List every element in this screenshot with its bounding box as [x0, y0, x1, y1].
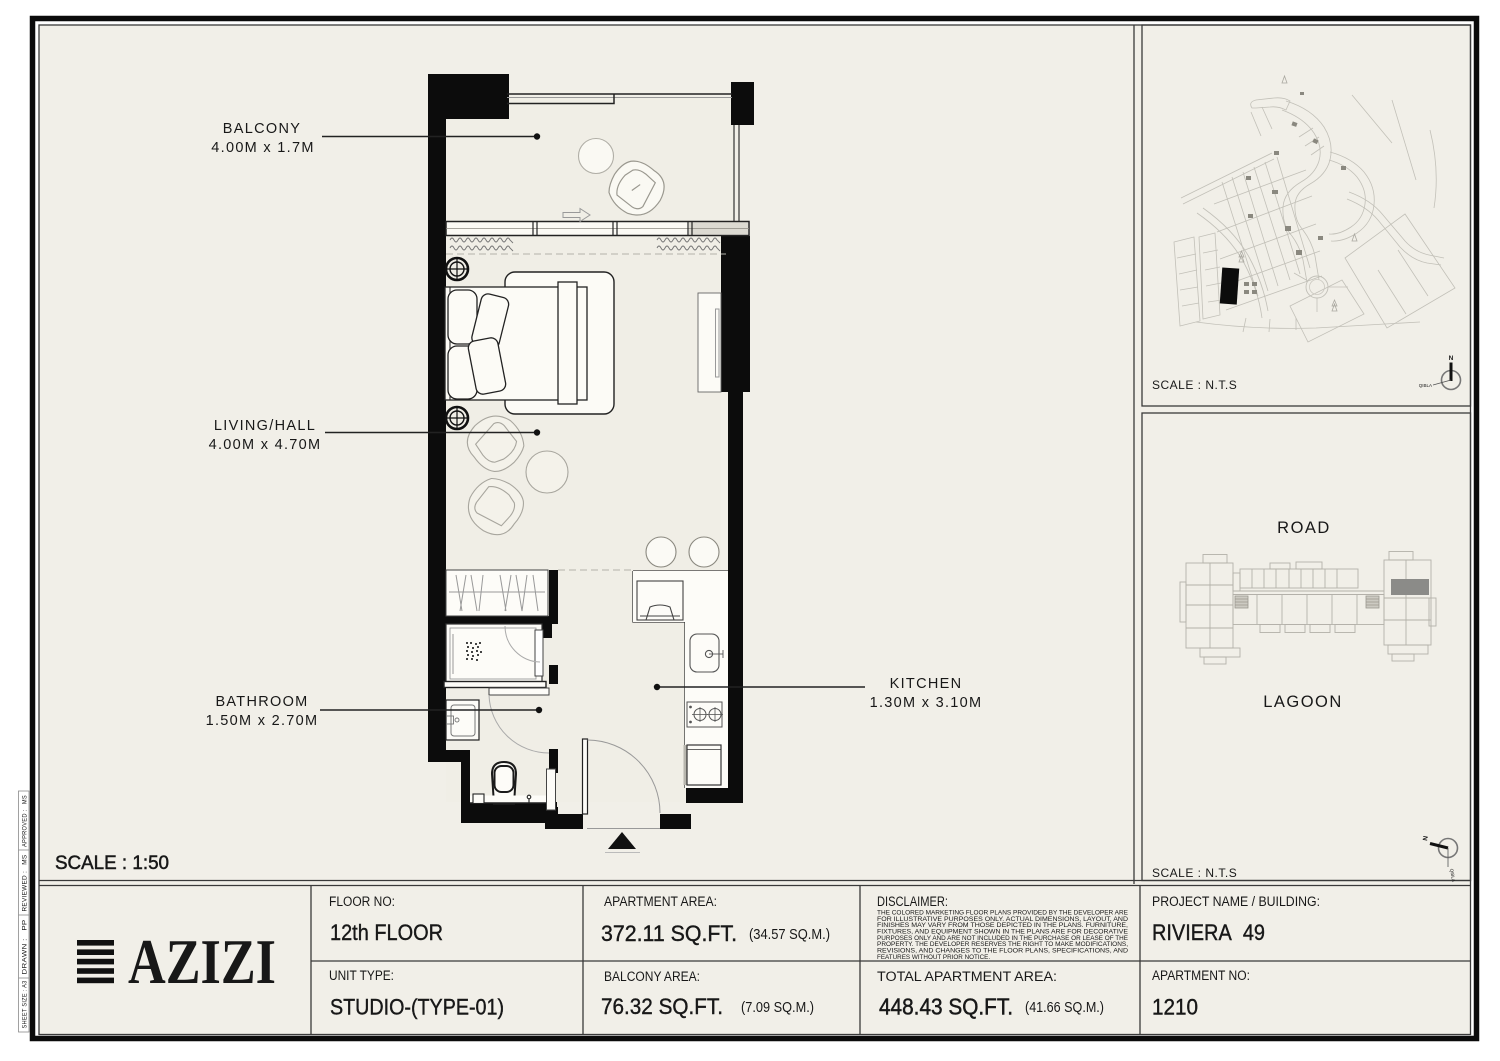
svg-text:BATHROOM: BATHROOM [215, 694, 308, 710]
svg-text:1.50M x 2.70M: 1.50M x 2.70M [206, 713, 319, 729]
svg-text:DRAWN : PP: DRAWN : PP [22, 919, 29, 974]
svg-text:76.32 SQ.FT.: 76.32 SQ.FT. [601, 994, 723, 1019]
svg-text:(34.57 SQ.M.): (34.57 SQ.M.) [749, 927, 830, 943]
svg-text:SCALE : N.T.S: SCALE : N.T.S [1152, 866, 1237, 880]
svg-text:KITCHEN: KITCHEN [890, 676, 963, 692]
svg-text:APPROVED : MS: APPROVED : MS [22, 795, 29, 847]
svg-text:SCALE : N.T.S: SCALE : N.T.S [1152, 378, 1237, 392]
svg-text:(7.09 SQ.M.): (7.09 SQ.M.) [741, 1000, 814, 1016]
svg-text:4.00M x 4.70M: 4.00M x 4.70M [209, 437, 322, 453]
svg-text:372.11 SQ.FT.: 372.11 SQ.FT. [601, 921, 737, 946]
svg-text:1.30M x 3.10M: 1.30M x 3.10M [870, 695, 983, 711]
svg-text:UNIT TYPE:: UNIT TYPE: [329, 968, 394, 983]
svg-text:STUDIO-(TYPE-01): STUDIO-(TYPE-01) [330, 995, 504, 1020]
svg-text:FLOOR NO:: FLOOR NO: [329, 894, 395, 909]
svg-text:N: N [1449, 355, 1454, 362]
svg-text:TOTAL APARTMENT AREA:: TOTAL APARTMENT AREA: [877, 969, 1057, 984]
svg-text:APARTMENT AREA:: APARTMENT AREA: [604, 894, 717, 909]
svg-text:LAGOON: LAGOON [1263, 693, 1343, 711]
svg-text:SCALE : 1:50: SCALE : 1:50 [55, 853, 169, 874]
svg-text:FEATURES WITHOUT PRIOR NOTICE.: FEATURES WITHOUT PRIOR NOTICE. [877, 954, 990, 961]
svg-text:LIVING/HALL: LIVING/HALL [214, 418, 316, 434]
svg-text:1210: 1210 [1152, 995, 1198, 1020]
svg-text:BALCONY AREA:: BALCONY AREA: [604, 969, 700, 984]
svg-text:QIBLA: QIBLA [1419, 383, 1432, 388]
svg-text:12th FLOOR: 12th FLOOR [330, 920, 443, 945]
svg-text:DISCLAIMER:: DISCLAIMER: [877, 894, 948, 909]
svg-text:(41.66 SQ.M.): (41.66 SQ.M.) [1025, 1000, 1104, 1016]
svg-text:ROAD: ROAD [1277, 519, 1331, 537]
svg-text:AZIZI: AZIZI [128, 927, 276, 997]
svg-text:RIVIERA 49: RIVIERA 49 [1152, 920, 1265, 945]
svg-text:4.00M x 1.7M: 4.00M x 1.7M [211, 140, 314, 156]
svg-text:APARTMENT NO:: APARTMENT NO: [1152, 968, 1250, 983]
svg-text:REVIEWED : MS: REVIEWED : MS [22, 854, 29, 911]
svg-text:SHEET SIZE : A3: SHEET SIZE : A3 [22, 981, 29, 1029]
svg-text:BALCONY: BALCONY [223, 121, 301, 137]
svg-text:PROJECT NAME / BUILDING:: PROJECT NAME / BUILDING: [1152, 894, 1320, 909]
svg-text:448.43 SQ.FT.: 448.43 SQ.FT. [879, 994, 1013, 1020]
